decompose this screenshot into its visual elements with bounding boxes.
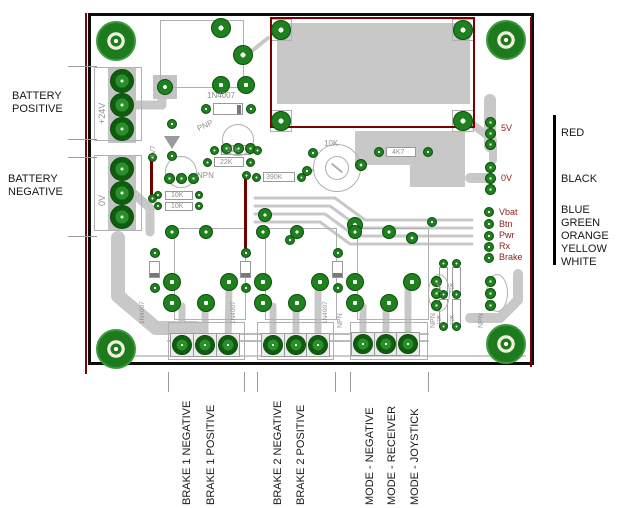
resistor-10k-b-label: 10K: [171, 203, 183, 210]
solder-pad: [241, 283, 251, 293]
leader-line-pos-bottom: [68, 139, 97, 140]
resistor-390k-label: 390K: [266, 174, 282, 181]
solder-pad: [110, 93, 134, 117]
solder-pad: [485, 288, 496, 299]
channel-diode-1-label: 1N4007: [140, 290, 147, 324]
solder-pad: [263, 335, 283, 355]
solder-pad: [302, 166, 312, 176]
solder-pad: [164, 173, 175, 184]
solder-pad: [252, 173, 261, 182]
zener-diode-symbol: [164, 136, 180, 149]
wire-color-white-label: WHITE: [561, 256, 609, 269]
solder-pad: [355, 159, 367, 171]
solder-pad: [237, 76, 255, 94]
pin-pwr-label: Pwr: [499, 231, 515, 240]
solder-pad: [485, 117, 496, 128]
solder-pad: [220, 273, 238, 291]
solder-pad: [353, 334, 373, 354]
solder-pad: [452, 259, 461, 268]
solder-pad: [246, 104, 256, 114]
solder-pad: [271, 111, 291, 131]
solder-pad: [195, 335, 215, 355]
leader-mode-right: [428, 372, 429, 392]
solder-pad: [308, 335, 328, 355]
solder-pad: [485, 173, 496, 184]
solder-pad: [254, 294, 272, 312]
header-5v-label: 5V: [501, 124, 512, 133]
solder-pad: [167, 151, 177, 161]
diode-top-label: 1N4007: [207, 92, 235, 100]
solder-pad: [333, 248, 343, 258]
solder-pad: [333, 283, 343, 293]
solder-pad: [484, 253, 494, 263]
pads-layer: [0, 0, 620, 508]
solder-pad: [485, 276, 496, 287]
solder-pad: [484, 242, 494, 252]
solder-pad: [199, 225, 213, 239]
solder-pad: [195, 191, 203, 199]
solder-pad: [211, 18, 231, 38]
terminal-label-0v: 0V: [98, 182, 107, 206]
r10k-right-1-label: 10K: [437, 269, 443, 293]
solder-pad: [201, 104, 211, 114]
solder-pad: [406, 232, 418, 244]
solder-pad: [484, 219, 494, 229]
solder-pad: [110, 181, 134, 205]
solder-pad: [484, 207, 494, 217]
solder-pad: [157, 79, 173, 95]
battery-positive-line1: BATTERY: [12, 90, 63, 103]
solder-pad: [110, 157, 134, 181]
terminal-label-24v: +24V: [98, 86, 107, 124]
solder-pad: [167, 119, 177, 129]
leader-brake1-right: [244, 372, 245, 392]
resistor-22k-b-label: 22K: [220, 159, 232, 166]
solder-pad: [195, 202, 203, 210]
solder-pad: [453, 111, 473, 131]
leader-brake2-right: [335, 372, 336, 392]
r10k-right-3-label: 10K: [437, 301, 443, 325]
label-brake1-negative: BRAKE 1 NEGATIVE: [181, 393, 194, 505]
solder-pad: [484, 231, 494, 241]
solder-pad: [254, 273, 272, 291]
leader-line-pos-top: [68, 66, 97, 67]
solder-pad: [203, 158, 212, 167]
solder-pad: [439, 259, 448, 268]
pot-10k-label: 10K: [324, 140, 338, 148]
solder-pad: [110, 69, 134, 93]
solder-pad: [176, 173, 187, 184]
battery-negative-label: BATTERY NEGATIVE: [8, 173, 63, 199]
solder-pad: [485, 300, 496, 311]
solder-pad: [271, 20, 291, 40]
resistor-4k7-label: 4K7: [392, 149, 404, 156]
solder-pad: [256, 225, 270, 239]
wire-color-blue-label: BLUE: [561, 204, 609, 217]
battery-positive-line2: POSITIVE: [12, 103, 63, 116]
solder-pad: [242, 171, 251, 180]
header-0v-label: 0V: [501, 174, 512, 183]
pin-btn-label: Btn: [499, 220, 513, 229]
npn-bottom-1-label: NPN: [337, 308, 344, 328]
solder-pad: [218, 335, 238, 355]
solder-pad: [163, 273, 181, 291]
solder-pad: [197, 294, 215, 312]
label-brake2-negative: BRAKE 2 NEGATIVE: [272, 393, 285, 505]
solder-pad: [380, 294, 398, 312]
legend-separator-bar: [553, 115, 556, 265]
leader-brake2-left: [257, 372, 258, 392]
solder-pad: [376, 334, 396, 354]
solder-pad: [403, 273, 421, 291]
solder-pad: [485, 162, 496, 173]
mounting-hole-bottom-right: [486, 324, 526, 364]
solder-pad: [288, 294, 306, 312]
solder-pad: [253, 146, 262, 155]
solder-pad: [233, 45, 253, 65]
solder-pad: [348, 225, 362, 239]
mounting-hole-top-left: [96, 21, 136, 61]
solder-pad: [258, 208, 272, 222]
battery-positive-label: BATTERY POSITIVE: [12, 90, 63, 116]
solder-pad: [311, 273, 329, 291]
solder-pad: [246, 158, 255, 167]
solder-pad: [110, 205, 134, 229]
r10k-right-4-label: 10K: [450, 301, 456, 325]
solder-pad: [241, 248, 251, 258]
solder-pad: [154, 202, 162, 210]
wire-color-yellow-label: YELLOW: [561, 243, 609, 256]
solder-pad: [110, 117, 134, 141]
leader-line-neg-bottom: [68, 236, 97, 237]
solder-pad: [150, 248, 160, 258]
solder-pad: [286, 335, 306, 355]
npn-left-label: NPN: [197, 172, 214, 180]
channel-diode-2-label: 1N4007: [231, 290, 238, 324]
leader-brake1-left: [168, 372, 169, 392]
label-brake2-positive: BRAKE 2 POSITIVE: [295, 393, 308, 505]
wire-color-black-label: BLACK: [561, 173, 597, 186]
solder-pad: [172, 335, 192, 355]
solder-pad: [346, 273, 364, 291]
solder-pad: [165, 225, 179, 239]
solder-pad: [382, 225, 396, 239]
solder-pad: [374, 147, 384, 157]
solder-pad: [346, 294, 364, 312]
label-mode-joystick: MODE - JOYSTICK: [409, 393, 422, 505]
wire-color-orange-label: ORANGE: [561, 230, 609, 243]
solder-pad: [423, 147, 433, 157]
wire-color-pin-list: BLUE GREEN ORANGE YELLOW WHITE: [561, 204, 609, 269]
battery-negative-line1: BATTERY: [8, 173, 63, 186]
npn-bottom-3-label: NPN: [478, 308, 485, 328]
solder-pad: [290, 225, 304, 239]
zener-4v7-label: 4V7: [150, 130, 157, 158]
solder-pad: [210, 146, 219, 155]
resistor-22k-a-label: 22K: [227, 147, 239, 154]
channel-diode-3-label: 1N4007: [323, 290, 330, 324]
solder-pad: [398, 334, 418, 354]
solder-pad: [485, 139, 496, 150]
mounting-hole-bottom-left: [96, 329, 136, 369]
pcb-layout-diagram: +24V 0V 1N4007 PNP 22K 22K 4K7 390K 10K …: [0, 0, 620, 508]
solder-pad: [308, 148, 318, 158]
wire-color-red-label: RED: [561, 127, 584, 140]
r10k-right-2-label: 10K: [450, 269, 456, 293]
wire-color-green-label: GREEN: [561, 217, 609, 230]
label-brake1-positive: BRAKE 1 POSITIVE: [205, 393, 218, 505]
solder-pad: [485, 184, 496, 195]
solder-pad: [163, 294, 181, 312]
resistor-10k-a-label: 10K: [171, 192, 183, 199]
battery-negative-line2: NEGATIVE: [8, 186, 63, 199]
pin-rx-label: Rx: [499, 242, 510, 251]
solder-pad: [453, 20, 473, 40]
solder-pad: [148, 194, 157, 203]
label-mode-negative: MODE - NEGATIVE: [364, 393, 377, 505]
mounting-hole-top-right: [486, 20, 526, 60]
solder-pad: [150, 283, 160, 293]
solder-pad: [427, 217, 437, 227]
npn-bottom-2-label: NPN: [430, 308, 437, 328]
label-mode-receiver: MODE - RECEIVER: [386, 393, 399, 505]
leader-line-neg-top: [68, 157, 97, 158]
leader-mode-left: [350, 372, 351, 392]
solder-pad: [485, 128, 496, 139]
pin-vbat-label: Vbat: [499, 208, 518, 217]
pin-brake-label: Brake: [499, 253, 523, 262]
